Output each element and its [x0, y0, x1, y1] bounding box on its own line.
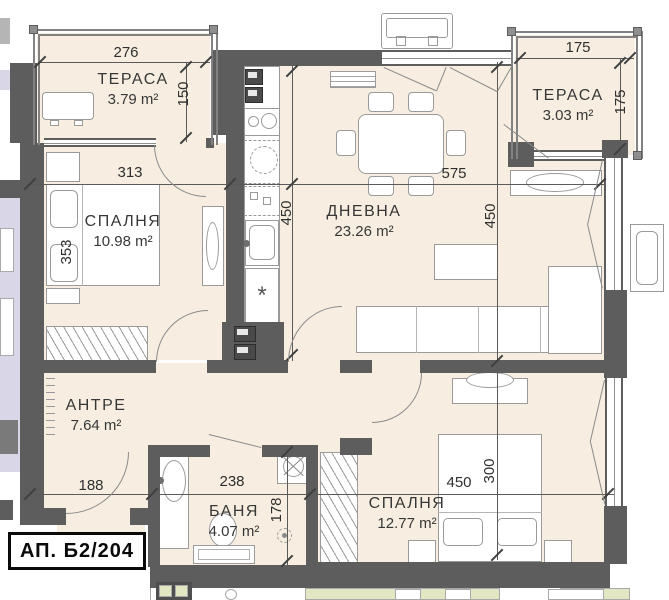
wall	[318, 562, 610, 588]
desk-chair	[466, 372, 514, 388]
window	[604, 156, 623, 290]
wall	[44, 360, 156, 373]
wall	[340, 438, 372, 455]
neighbor-furniture	[0, 228, 14, 272]
coffee-table	[434, 244, 498, 280]
dim-line	[516, 58, 634, 59]
wall	[420, 360, 605, 373]
apartment-label: АП. Б2/204	[8, 532, 146, 570]
neighbor-chip-cell	[159, 585, 172, 597]
dim-bedroom2-width: 450	[434, 474, 484, 492]
small-fixture	[263, 197, 271, 205]
neighbor-furniture	[0, 298, 14, 356]
small-fixture	[250, 192, 258, 200]
radiator-unit	[381, 13, 453, 49]
railing-post	[209, 25, 218, 34]
sofa-seam	[416, 306, 417, 353]
dishwasher: *	[245, 268, 279, 324]
wall	[604, 506, 627, 564]
wall	[226, 135, 244, 325]
wall	[604, 290, 627, 378]
sink-tap	[243, 240, 250, 247]
chair	[336, 130, 356, 156]
stove-burner	[261, 113, 277, 129]
pillow	[50, 190, 78, 228]
neighbor-fixture	[548, 589, 604, 600]
neighbor-gray-block	[0, 420, 18, 454]
railing-post	[29, 25, 38, 34]
appliance-swing	[250, 146, 278, 174]
dim-line	[287, 447, 288, 569]
shower-inner	[198, 549, 250, 560]
neighbor-lavender-sliver	[0, 70, 10, 90]
dresser-mirror	[206, 222, 219, 270]
fridge-icon	[245, 69, 263, 85]
nightstand	[544, 540, 572, 564]
stove-burner	[248, 116, 259, 127]
appliance-niche	[244, 186, 280, 216]
room-label-terrace1: ТЕРАСА 3.79 m²	[83, 70, 183, 109]
window	[382, 50, 513, 66]
dim-living-depth: 450	[482, 196, 500, 236]
neighbor-dark-block	[0, 500, 13, 520]
wall	[130, 508, 160, 525]
fridge-icon	[234, 326, 256, 342]
dim-bedroom1-depth: 353	[58, 232, 76, 272]
dim-bedroom1-width: 313	[105, 164, 155, 182]
dim-bath-width: 238	[207, 473, 257, 491]
wall	[340, 360, 372, 373]
nightstand	[46, 152, 80, 182]
fridge-icon	[234, 344, 256, 360]
wall	[44, 508, 66, 525]
room-label-bath: БАНЯ 4.07 m²	[184, 502, 284, 541]
window	[605, 376, 623, 506]
sink-basin	[249, 225, 275, 260]
neighbor-fixture	[395, 589, 421, 600]
chair	[408, 92, 434, 112]
wall	[148, 445, 160, 567]
wall	[306, 445, 318, 567]
bathroom-sink-icon	[162, 460, 186, 502]
dim-line	[40, 62, 210, 63]
chair	[446, 130, 466, 156]
chair	[368, 92, 394, 112]
dim-terrace1-width: 276	[101, 44, 151, 62]
wall	[207, 360, 288, 373]
wardrobe	[46, 326, 148, 364]
neighbor-wall-fragment	[0, 18, 10, 44]
room-label-bedroom1: СПАЛНЯ 10.98 m²	[78, 212, 168, 251]
dim-terrace2-width: 175	[553, 39, 603, 57]
pillow	[497, 518, 537, 546]
sofa-seam	[540, 306, 541, 353]
dim-kitchen-depth: 450	[278, 193, 296, 233]
room-label-terrace2: ТЕРАСА 3.03 m²	[518, 86, 618, 125]
dim-line	[24, 184, 604, 185]
railing-post	[633, 151, 642, 160]
dim-bedroom2-depth: 300	[481, 451, 499, 491]
dim-living-width: 575	[429, 165, 479, 183]
sofa-seam	[478, 306, 479, 353]
wall	[0, 180, 20, 198]
room-label-bedroom2: СПАЛНЯ 12.77 m²	[352, 494, 462, 533]
wall	[20, 143, 44, 525]
neighbor-chip-cell	[175, 585, 188, 597]
room-label-hall: АНТРЕ 7.64 m²	[46, 396, 146, 435]
railing-post	[633, 27, 642, 36]
dishwasher-star: *	[257, 282, 266, 310]
floor-plan: *	[0, 0, 669, 600]
neighbor-fixture	[445, 589, 471, 600]
room-label-living: ДНЕВНА 23.26 m²	[318, 202, 410, 241]
dim-hall-width: 188	[66, 477, 116, 495]
fridge-icon	[245, 87, 263, 103]
console-plate	[526, 173, 584, 192]
neighbor-fixture	[225, 589, 237, 600]
ac-unit	[630, 224, 664, 292]
nightstand	[408, 540, 436, 564]
shelf	[330, 71, 376, 88]
nightstand	[46, 288, 80, 304]
railing-post	[507, 27, 516, 36]
chair	[368, 176, 394, 196]
sofa-chaise	[548, 266, 602, 354]
